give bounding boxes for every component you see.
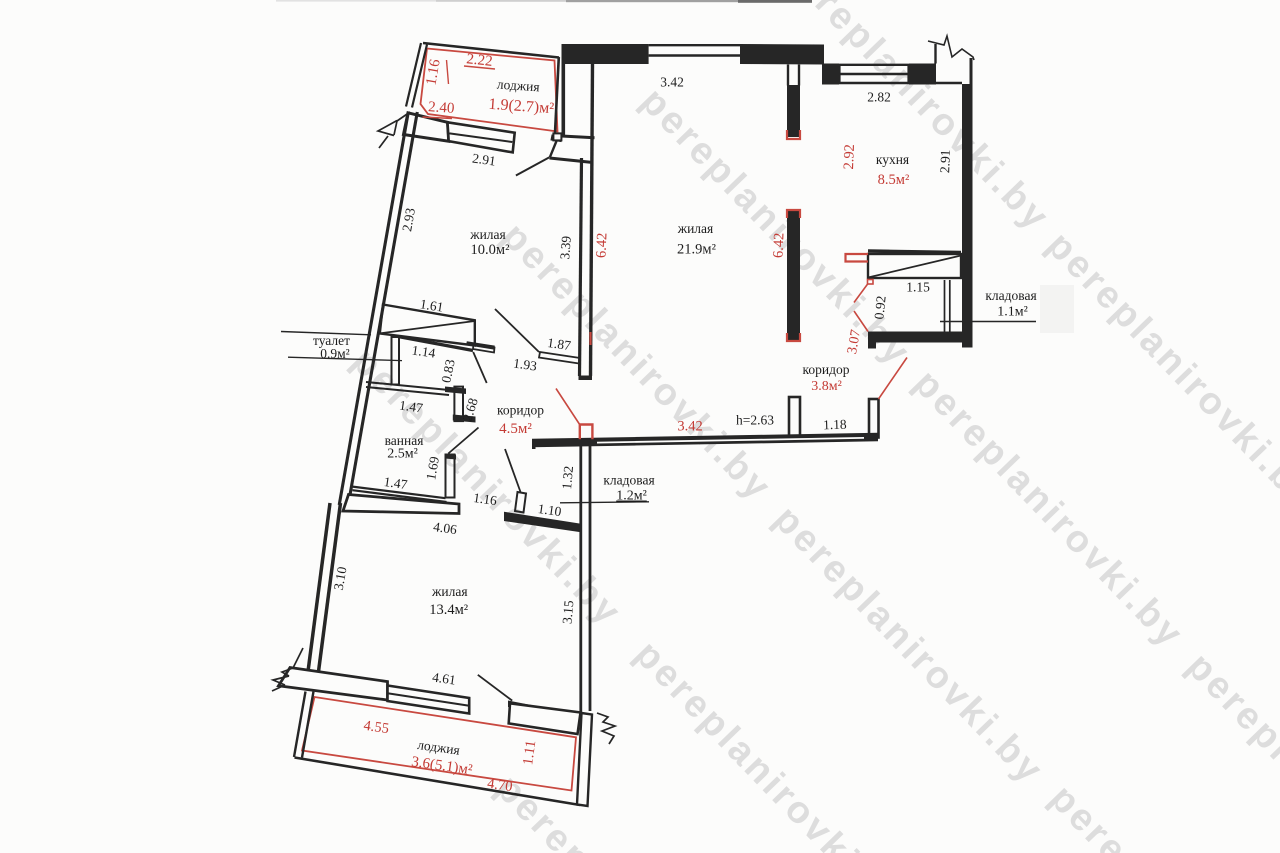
svg-text:коридор: коридор [497, 403, 544, 418]
svg-text:2.22: 2.22 [466, 51, 494, 70]
svg-text:6.42: 6.42 [771, 232, 788, 258]
svg-text:21.9м²: 21.9м² [677, 242, 717, 258]
svg-text:1.11: 1.11 [520, 739, 539, 766]
svg-text:3.42: 3.42 [677, 419, 702, 435]
svg-text:коридор: коридор [803, 362, 850, 377]
svg-text:1.18: 1.18 [823, 417, 847, 433]
svg-text:кладовая: кладовая [985, 288, 1036, 303]
svg-text:3.15: 3.15 [559, 599, 576, 624]
svg-text:жилая: жилая [469, 227, 506, 242]
svg-text:4.5м²: 4.5м² [499, 421, 532, 437]
svg-text:1.32: 1.32 [559, 465, 576, 490]
svg-text:2.40: 2.40 [428, 99, 455, 117]
svg-text:10.0м²: 10.0м² [471, 242, 511, 258]
svg-text:3.8м²: 3.8м² [811, 379, 842, 394]
svg-text:2.5м²: 2.5м² [387, 447, 418, 462]
svg-text:1.1м²: 1.1м² [997, 305, 1028, 320]
svg-text:8.5м²: 8.5м² [878, 172, 910, 188]
svg-text:13.4м²: 13.4м² [429, 602, 469, 618]
svg-text:0.92: 0.92 [871, 295, 888, 320]
svg-text:жилая: жилая [431, 584, 468, 599]
svg-text:h=2.63: h=2.63 [736, 413, 774, 428]
svg-text:2.92: 2.92 [841, 144, 858, 170]
svg-text:кладовая: кладовая [603, 473, 654, 488]
svg-text:1.2м²: 1.2м² [616, 489, 647, 504]
svg-text:1.15: 1.15 [906, 280, 930, 295]
svg-text:жилая: жилая [677, 221, 714, 236]
svg-text:6.42: 6.42 [594, 232, 611, 258]
svg-text:2.91: 2.91 [937, 149, 953, 173]
svg-text:кухня: кухня [876, 152, 909, 167]
svg-text:2.82: 2.82 [867, 90, 891, 105]
svg-text:3.39: 3.39 [557, 235, 574, 260]
svg-text:лоджия: лоджия [496, 77, 540, 95]
svg-text:3.42: 3.42 [660, 75, 684, 90]
svg-text:0.9м²: 0.9м² [320, 346, 349, 361]
